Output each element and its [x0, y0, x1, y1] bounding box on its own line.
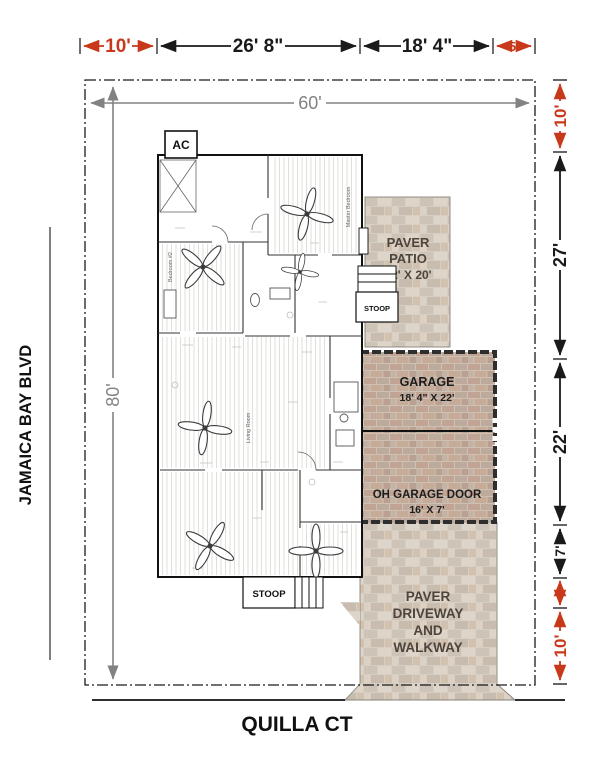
right-dim-4ft: 4' — [556, 589, 567, 597]
house-floor-plan: Master Bedroom Living Room Bedroom #2 — [158, 155, 368, 583]
top-dim-18ft4: 18' 4" — [402, 36, 453, 57]
street-label-bottom: QUILLA CT — [241, 713, 352, 736]
site-plan-sheet: PAVER PATIO 12' X 20' PAVER DRIVEWAY AND… — [0, 0, 600, 760]
patio-label-line2: PATIO — [389, 251, 427, 266]
top-dim-26ft8: 26' 8" — [233, 36, 284, 57]
driveway-label-line4: WALKWAY — [393, 640, 462, 655]
patio-door — [359, 228, 368, 254]
ac-unit: AC — [165, 131, 197, 158]
walkway-chamfer — [340, 602, 360, 626]
right-dim-10ft-bottom: 10' — [551, 635, 570, 658]
top-dim-10ft: 10' — [105, 36, 131, 57]
garage-label-line1: GARAGE — [400, 375, 455, 389]
top-dim-5ft: 5' — [509, 39, 519, 54]
garage-door-label-line1: OH GARAGE DOOR — [373, 489, 482, 501]
street-jamaica-bay: JAMAICA BAY BLVD — [17, 227, 50, 660]
top-dimension-string: 10' 26' 8" 18' 4" 5' — [80, 36, 535, 57]
driveway-label-line1: PAVER — [406, 589, 451, 604]
rear-stoop: STOOP — [356, 266, 398, 322]
front-stoop-label: STOOP — [252, 589, 286, 600]
paver-driveway: PAVER DRIVEWAY AND WALKWAY — [340, 522, 515, 700]
street-quilla-ct: QUILLA CT — [92, 700, 565, 736]
right-dim-10ft-top: 10' — [551, 105, 570, 128]
ac-label: AC — [172, 138, 190, 152]
right-dimension-string: 10' 27' 22' 7' 4' 10' — [550, 80, 570, 684]
street-label-left: JAMAICA BAY BLVD — [17, 345, 35, 506]
garage-door-label-line2: 16' X 7' — [409, 504, 444, 516]
right-dim-27ft: 27' — [550, 243, 570, 267]
master-bedroom-label: Master Bedroom — [346, 186, 352, 227]
driveway-label-line2: DRIVEWAY — [393, 606, 464, 621]
front-stoop: STOOP — [243, 577, 323, 608]
garage: GARAGE 18' 4" X 22' OH GARAGE DOOR 16' X… — [360, 352, 495, 522]
right-dim-7ft: 7' — [552, 545, 568, 556]
lot-width-label: 60' — [298, 93, 321, 113]
rear-stoop-label: STOOP — [364, 304, 390, 313]
driveway-label-line3: AND — [413, 623, 442, 638]
patio-label-line1: PAVER — [387, 235, 430, 250]
lot-depth-label: 80' — [103, 383, 123, 406]
bedroom2-label: Bedroom #2 — [168, 252, 174, 282]
living-room-label: Living Room — [246, 412, 252, 443]
garage-label-line2: 18' 4" X 22' — [400, 392, 455, 404]
right-dim-22ft: 22' — [550, 430, 570, 454]
site-plan-drawing: PAVER PATIO 12' X 20' PAVER DRIVEWAY AND… — [0, 0, 600, 760]
